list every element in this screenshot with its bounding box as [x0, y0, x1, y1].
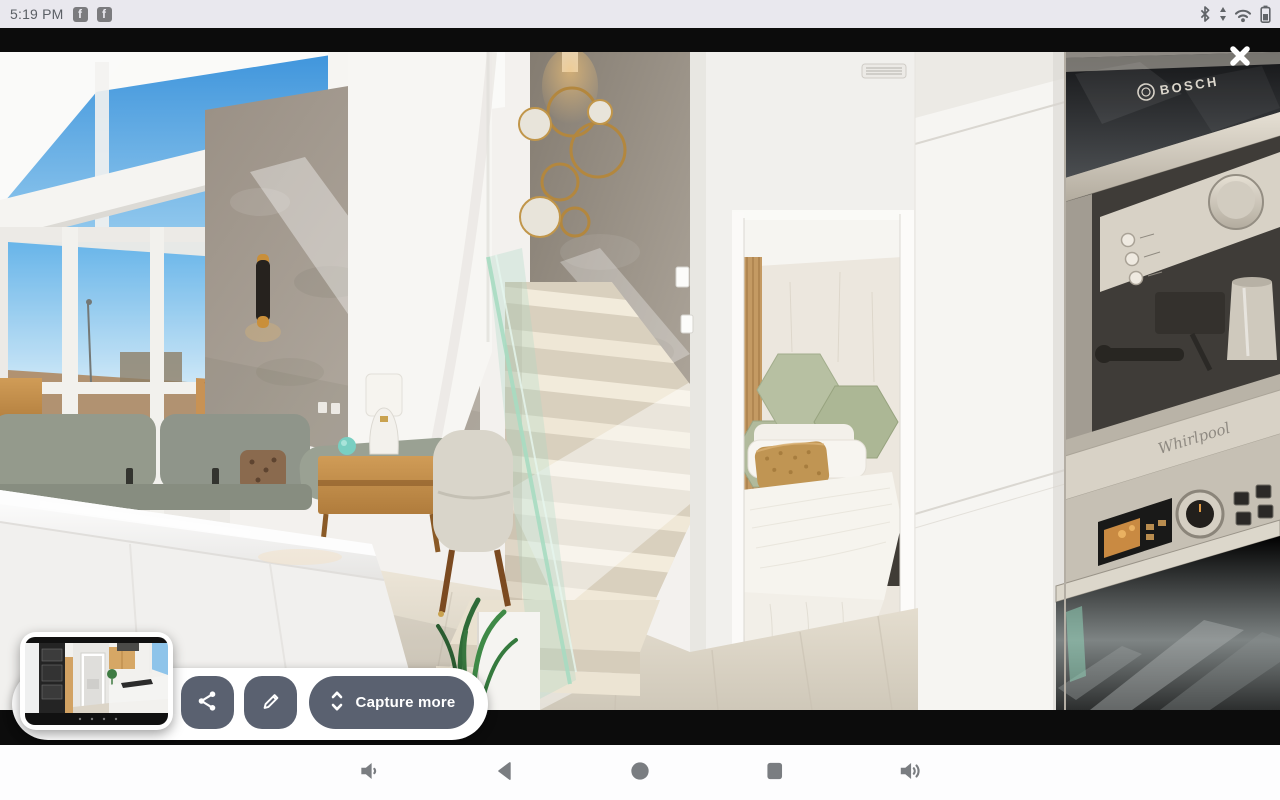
close-icon — [1224, 60, 1256, 75]
table-lamp — [366, 374, 402, 454]
wifi-icon — [1233, 5, 1253, 23]
volume-up-button[interactable] — [886, 749, 934, 797]
expand-vertical-icon — [328, 690, 346, 716]
volume-down-icon — [357, 758, 383, 787]
status-bar-right — [1197, 4, 1272, 24]
recents-icon — [762, 758, 788, 787]
volume-up-icon — [897, 758, 923, 787]
close-button[interactable] — [1224, 40, 1256, 72]
edit-button[interactable] — [244, 676, 297, 729]
battery-icon — [1259, 4, 1272, 24]
clock: 5:19 PM — [10, 6, 64, 22]
home-button[interactable] — [616, 749, 664, 797]
decor-ball — [338, 437, 356, 455]
back-icon — [492, 758, 518, 787]
screenshot-preview-image: BOSCH Whirlpool — [0, 52, 1280, 710]
capture-more-label: Capture more — [356, 694, 456, 711]
ceiling-vent — [862, 64, 906, 78]
home-icon — [627, 758, 653, 787]
share-icon — [196, 689, 220, 716]
network-activity-icon — [1219, 5, 1227, 23]
recents-button[interactable] — [751, 749, 799, 797]
facebook-notification-icon: f — [73, 7, 88, 22]
facebook-notification-icon: f — [97, 7, 112, 22]
screenshot-thumbnail[interactable] — [20, 632, 173, 730]
status-bar-left: 5:19 PM f f — [10, 6, 112, 22]
pencil-icon — [259, 689, 283, 716]
screenshot-thumbnail-image — [25, 637, 168, 725]
back-button[interactable] — [481, 749, 529, 797]
status-bar: 5:19 PM f f — [0, 0, 1280, 28]
bluetooth-icon — [1197, 4, 1213, 24]
navigation-bar — [0, 745, 1280, 800]
screenshot-preview-area: BOSCH Whirlpool — [0, 28, 1280, 745]
volume-down-button[interactable] — [346, 749, 394, 797]
capture-more-button[interactable]: Capture more — [309, 676, 474, 729]
share-button[interactable] — [181, 676, 234, 729]
